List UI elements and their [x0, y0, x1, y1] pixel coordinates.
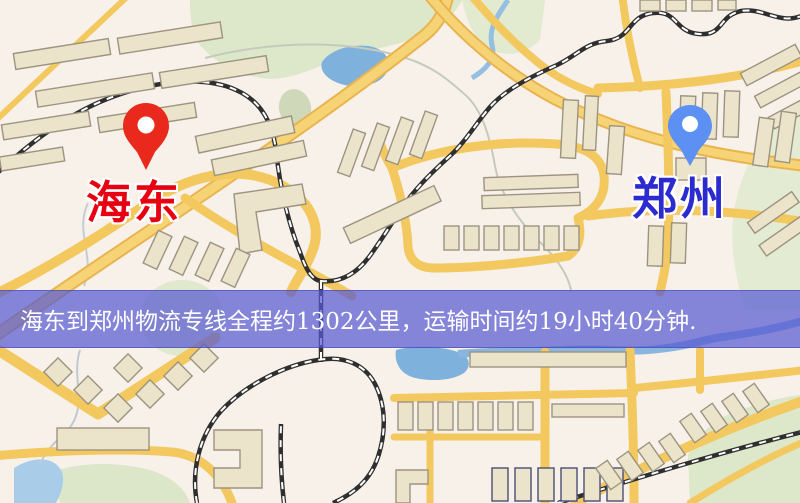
- banner-text: 海东到郑州物流专线全程约1302公里，运输时间约19小时40分钟.: [20, 302, 696, 336]
- map-screenshot: 海东 郑州 海东到郑州物流专线全程约1302公里，运输时间约19小时40分钟.: [0, 0, 800, 503]
- info-banner: 海东到郑州物流专线全程约1302公里，运输时间约19小时40分钟.: [0, 290, 800, 348]
- map-canvas[interactable]: [0, 0, 800, 503]
- destination-label: 郑州: [632, 176, 728, 221]
- origin-label: 海东: [86, 180, 182, 225]
